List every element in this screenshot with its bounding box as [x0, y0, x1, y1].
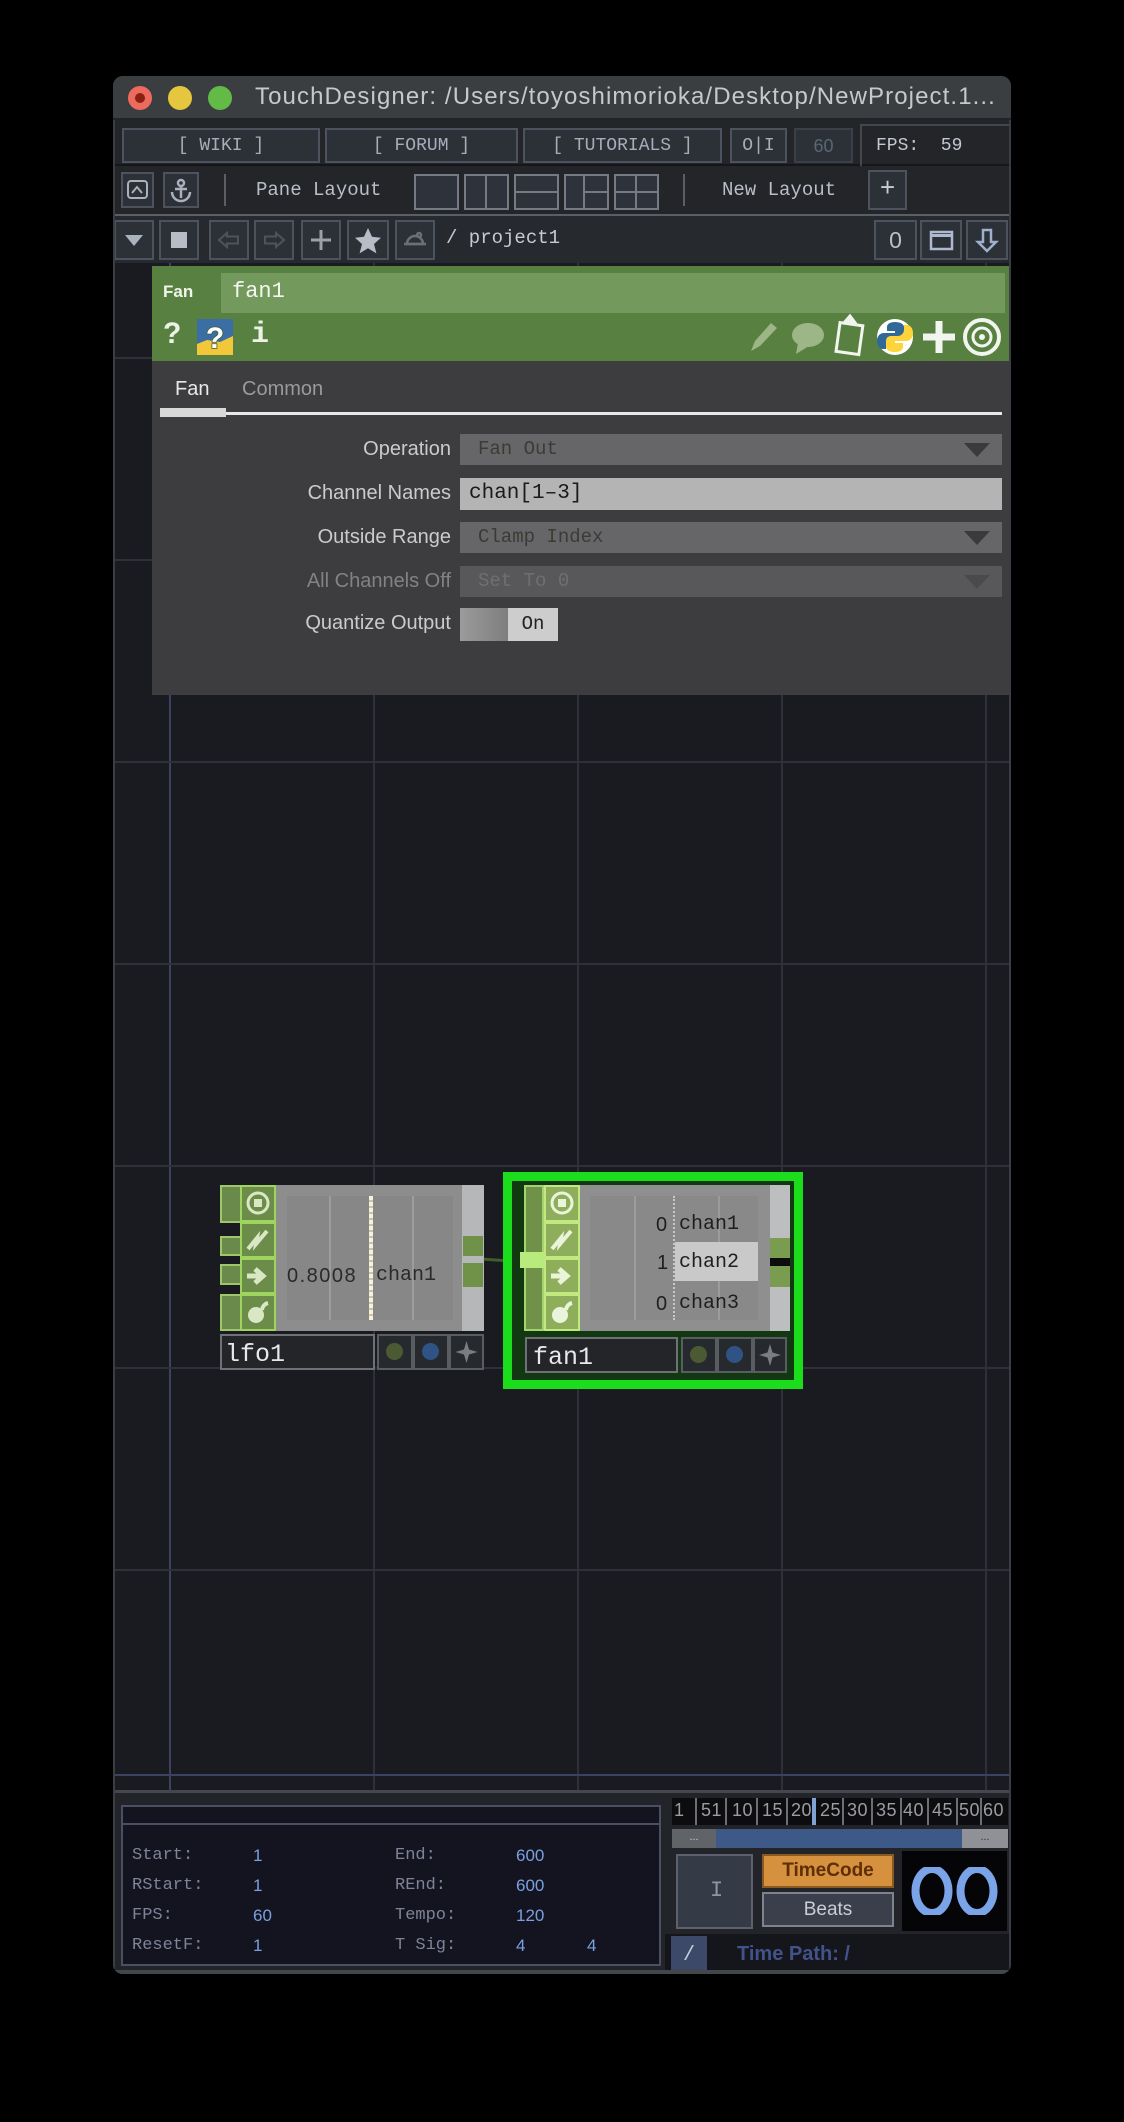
- svg-text:?: ?: [206, 322, 224, 355]
